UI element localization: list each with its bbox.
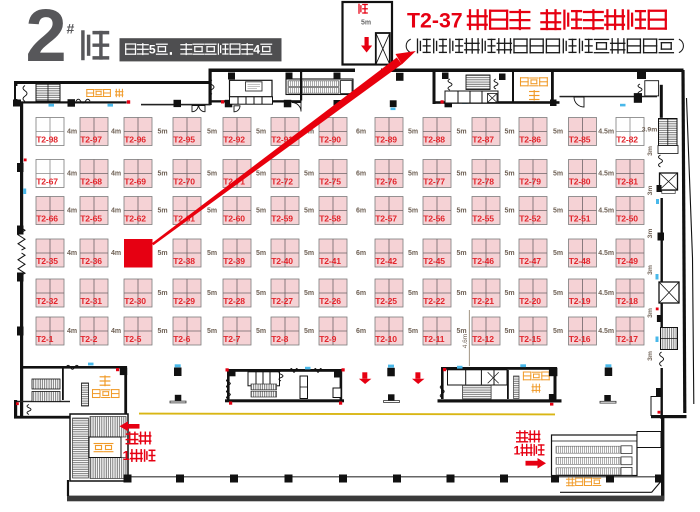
svg-text:5m: 5m — [207, 129, 217, 136]
svg-text:5m: 5m — [256, 171, 266, 178]
svg-text:4m: 4m — [67, 328, 77, 335]
svg-text:5m: 5m — [256, 208, 266, 215]
svg-text:5m: 5m — [456, 171, 466, 178]
svg-text:3m: 3m — [647, 265, 654, 275]
svg-text:T2-7: T2-7 — [223, 334, 240, 344]
svg-text:T2-30: T2-30 — [124, 296, 146, 306]
svg-text:1: 1 — [514, 443, 521, 457]
svg-text:5m: 5m — [304, 328, 314, 335]
svg-text:T2-12: T2-12 — [472, 334, 494, 344]
svg-text:T2-86: T2-86 — [519, 135, 541, 145]
svg-text:5m: 5m — [157, 208, 167, 215]
svg-text:T2-37: T2-37 — [407, 8, 463, 32]
svg-text:T2-60: T2-60 — [223, 214, 245, 224]
svg-text:T2-40: T2-40 — [271, 256, 293, 266]
svg-text:5m: 5m — [553, 171, 563, 178]
svg-text:T2-79: T2-79 — [519, 177, 541, 187]
svg-text:T2-16: T2-16 — [569, 334, 591, 344]
svg-text:3.9m: 3.9m — [642, 127, 658, 134]
svg-text:5m: 5m — [304, 208, 314, 215]
svg-text:T2-97: T2-97 — [80, 135, 102, 145]
svg-text:5m: 5m — [408, 129, 418, 136]
svg-text:5m: 5m — [504, 250, 514, 257]
svg-text:5m: 5m — [456, 208, 466, 215]
svg-text:5m: 5m — [207, 250, 217, 257]
svg-text:5m: 5m — [504, 129, 514, 136]
svg-text:T2-57: T2-57 — [375, 214, 397, 224]
svg-text:T2-35: T2-35 — [36, 256, 58, 266]
svg-text:5: 5 — [149, 43, 156, 57]
svg-text:T2-20: T2-20 — [519, 296, 541, 306]
svg-text:4.6m: 4.6m — [462, 334, 469, 348]
svg-text:T2-67: T2-67 — [36, 177, 58, 187]
svg-text:5m: 5m — [304, 250, 314, 257]
svg-text:T2-81: T2-81 — [616, 177, 638, 187]
svg-text:3m: 3m — [647, 308, 654, 318]
svg-text:T2-36: T2-36 — [80, 256, 102, 266]
svg-text:4.5m: 4.5m — [598, 208, 614, 215]
svg-text:4.5m: 4.5m — [598, 290, 614, 297]
svg-text:T2-51: T2-51 — [569, 214, 591, 224]
svg-text:5m: 5m — [157, 250, 167, 257]
svg-text:5m: 5m — [456, 290, 466, 297]
svg-text:5m: 5m — [504, 171, 514, 178]
svg-text:T2-70: T2-70 — [173, 177, 195, 187]
svg-text:T2-22: T2-22 — [423, 296, 445, 306]
svg-text:T2-17: T2-17 — [616, 334, 638, 344]
svg-text:5m: 5m — [361, 20, 371, 27]
svg-text:4m: 4m — [67, 250, 77, 257]
svg-text:4.5m: 4.5m — [598, 129, 614, 136]
svg-text:5m: 5m — [408, 171, 418, 178]
svg-text:4m: 4m — [111, 208, 121, 215]
svg-text:T2-65: T2-65 — [80, 214, 102, 224]
svg-text:T2-5: T2-5 — [124, 334, 141, 344]
svg-text:T2-26: T2-26 — [319, 296, 341, 306]
svg-text:5m: 5m — [553, 328, 563, 335]
svg-text:3m: 3m — [647, 146, 654, 156]
svg-text:T2-47: T2-47 — [519, 256, 541, 266]
svg-text:T2-72: T2-72 — [271, 177, 293, 187]
svg-text:T2-18: T2-18 — [616, 296, 638, 306]
svg-text:T2-59: T2-59 — [271, 214, 293, 224]
svg-text:T2-32: T2-32 — [36, 296, 58, 306]
svg-text:5m: 5m — [207, 208, 217, 215]
svg-text:T2-52: T2-52 — [519, 214, 541, 224]
svg-text:5m: 5m — [408, 250, 418, 257]
svg-text:T2-48: T2-48 — [569, 256, 591, 266]
svg-text:5m: 5m — [207, 171, 217, 178]
svg-text:T2-77: T2-77 — [423, 177, 445, 187]
svg-text:5m: 5m — [553, 129, 563, 136]
svg-text:5m: 5m — [504, 290, 514, 297]
svg-text:5m: 5m — [256, 129, 266, 136]
svg-text:T2-25: T2-25 — [375, 296, 397, 306]
svg-text:5m: 5m — [456, 129, 466, 136]
svg-text:5m: 5m — [304, 171, 314, 178]
svg-text:T2-75: T2-75 — [319, 177, 341, 187]
svg-text:4: 4 — [253, 43, 260, 57]
svg-text:T2-87: T2-87 — [472, 135, 494, 145]
svg-text:T2-95: T2-95 — [173, 135, 195, 145]
svg-text:T2-62: T2-62 — [124, 214, 146, 224]
svg-text:4.5m: 4.5m — [598, 171, 614, 178]
svg-text:T2-31: T2-31 — [80, 296, 102, 306]
svg-text:6m: 6m — [356, 250, 366, 257]
svg-text:T2-19: T2-19 — [569, 296, 591, 306]
svg-text:6m: 6m — [356, 290, 366, 297]
svg-text:4m: 4m — [111, 328, 121, 335]
svg-text:5m: 5m — [456, 250, 466, 257]
svg-text:5m: 5m — [207, 290, 217, 297]
svg-text:6m: 6m — [356, 328, 366, 335]
svg-text:T2-29: T2-29 — [173, 296, 195, 306]
svg-text:T2-69: T2-69 — [124, 177, 146, 187]
svg-text:T2-56: T2-56 — [423, 214, 445, 224]
svg-text:T2-82: T2-82 — [616, 135, 638, 145]
svg-text:T2-55: T2-55 — [472, 214, 494, 224]
svg-text:5m: 5m — [207, 328, 217, 335]
svg-text:5m: 5m — [408, 328, 418, 335]
svg-text:T2-49: T2-49 — [616, 256, 638, 266]
svg-text:5m: 5m — [504, 208, 514, 215]
svg-text:T2-68: T2-68 — [80, 177, 102, 187]
svg-text:5m: 5m — [553, 250, 563, 257]
svg-text:2: 2 — [26, 0, 67, 77]
svg-text:5m: 5m — [256, 250, 266, 257]
svg-text:5m: 5m — [408, 208, 418, 215]
svg-text:3m: 3m — [647, 186, 654, 196]
svg-text:T2-76: T2-76 — [375, 177, 397, 187]
svg-text:T2-28: T2-28 — [223, 296, 245, 306]
svg-text:T2-89: T2-89 — [375, 135, 397, 145]
svg-text:4m: 4m — [111, 129, 121, 136]
svg-text:4m: 4m — [111, 171, 121, 178]
svg-text:T2-41: T2-41 — [319, 256, 341, 266]
svg-text:T2-15: T2-15 — [519, 334, 541, 344]
svg-text:1: 1 — [123, 448, 130, 463]
svg-text:T2-1: T2-1 — [36, 334, 53, 344]
svg-text:T2-98: T2-98 — [36, 135, 58, 145]
svg-text:T2-21: T2-21 — [472, 296, 494, 306]
svg-text:4.5m: 4.5m — [598, 250, 614, 257]
svg-text:5m: 5m — [553, 208, 563, 215]
svg-text:T2-2: T2-2 — [80, 334, 97, 344]
svg-text:4m: 4m — [67, 208, 77, 215]
svg-text:T2-85: T2-85 — [569, 135, 591, 145]
svg-text:4m: 4m — [67, 129, 77, 136]
svg-text:T2-27: T2-27 — [271, 296, 293, 306]
svg-text:4m: 4m — [111, 250, 121, 257]
svg-text:3m: 3m — [647, 351, 654, 361]
svg-text:5m: 5m — [504, 328, 514, 335]
svg-text:6m: 6m — [356, 129, 366, 136]
svg-text:6m: 6m — [356, 171, 366, 178]
svg-text:5m: 5m — [157, 171, 167, 178]
svg-text:T2-42: T2-42 — [375, 256, 397, 266]
svg-text:6m: 6m — [356, 208, 366, 215]
svg-text:T2-92: T2-92 — [223, 135, 245, 145]
svg-text:T2-80: T2-80 — [569, 177, 591, 187]
svg-text:4.5m: 4.5m — [598, 328, 614, 335]
svg-text:T2-66: T2-66 — [36, 214, 58, 224]
svg-text:T2-58: T2-58 — [319, 214, 341, 224]
svg-text:T2-78: T2-78 — [472, 177, 494, 187]
svg-text:T2-6: T2-6 — [173, 334, 190, 344]
svg-text:T2-88: T2-88 — [423, 135, 445, 145]
svg-text:T2-38: T2-38 — [173, 256, 195, 266]
svg-text:5m: 5m — [408, 290, 418, 297]
svg-text:3m: 3m — [647, 229, 654, 239]
svg-text:5m: 5m — [157, 129, 167, 136]
svg-text:4m: 4m — [67, 171, 77, 178]
svg-text:5m: 5m — [553, 290, 563, 297]
svg-text:T2-45: T2-45 — [423, 256, 445, 266]
svg-text:T2-10: T2-10 — [375, 334, 397, 344]
svg-text:T2-90: T2-90 — [319, 135, 341, 145]
svg-text:#: # — [67, 21, 75, 37]
svg-text:5m: 5m — [256, 328, 266, 335]
svg-text:T2-96: T2-96 — [124, 135, 146, 145]
svg-text:T2-11: T2-11 — [423, 334, 445, 344]
svg-text:T2-50: T2-50 — [616, 214, 638, 224]
svg-text:5m: 5m — [157, 290, 167, 297]
svg-text:T2-8: T2-8 — [271, 334, 288, 344]
svg-text:5m: 5m — [256, 290, 266, 297]
svg-text:T2-39: T2-39 — [223, 256, 245, 266]
svg-text:5m: 5m — [157, 328, 167, 335]
svg-text:T2-9: T2-9 — [319, 334, 336, 344]
svg-text:5m: 5m — [304, 290, 314, 297]
svg-text:T2-46: T2-46 — [472, 256, 494, 266]
